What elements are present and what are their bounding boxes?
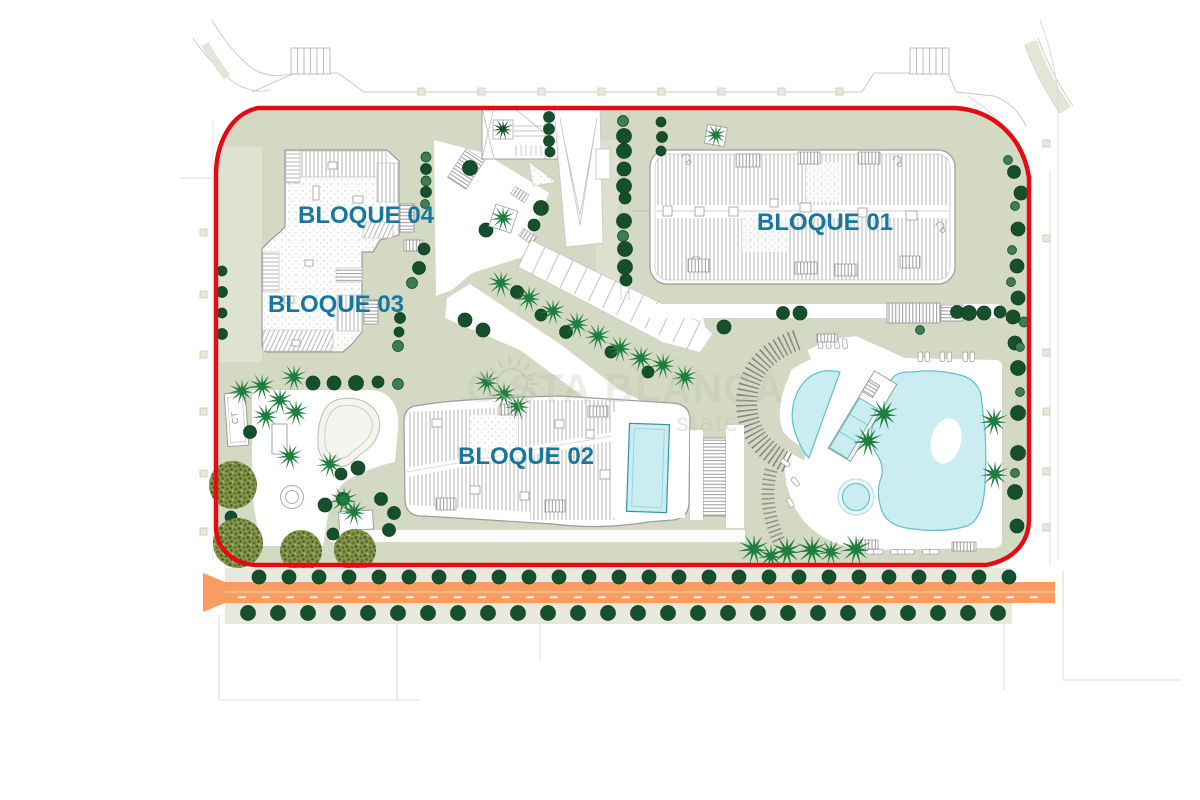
svg-text:BLOQUE 04: BLOQUE 04 bbox=[298, 202, 435, 229]
svg-text:CT: CT bbox=[229, 411, 240, 424]
svg-text:BLOQUE 03: BLOQUE 03 bbox=[268, 291, 404, 318]
svg-text:state: state bbox=[676, 409, 740, 437]
svg-text:C STA BLANCA: C STA BLANCA bbox=[466, 367, 786, 411]
svg-text:BLOQUE 01: BLOQUE 01 bbox=[757, 209, 893, 236]
svg-text:BLOQUE 02: BLOQUE 02 bbox=[458, 443, 594, 470]
